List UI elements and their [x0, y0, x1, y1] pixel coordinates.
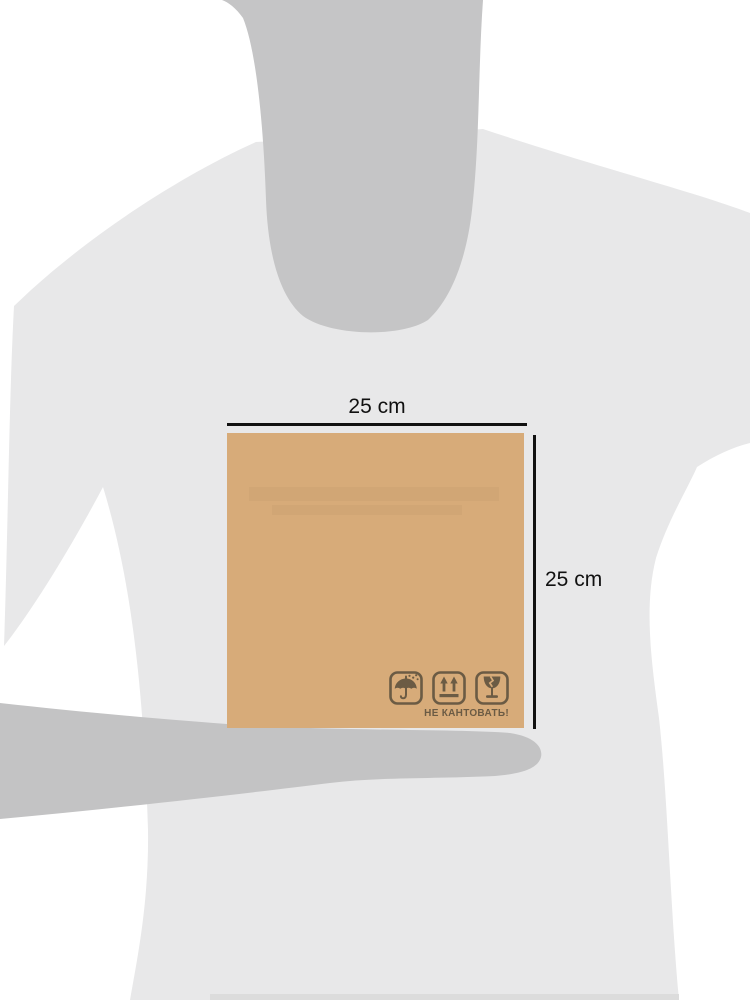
cardboard-box: НЕ КАНТОВАТЬ! — [227, 433, 524, 728]
keep-dry-icon — [389, 670, 423, 705]
box-tape-smudge — [249, 487, 499, 501]
width-dimension-label: 25 cm — [227, 395, 527, 419]
tshirt-hem-shadow — [210, 994, 679, 1000]
product-dimension-scene: НЕ КАНТОВАТЬ! 25 cm 25 cm — [0, 0, 750, 1000]
box-tape-smudge — [272, 505, 462, 515]
height-dimension-line — [533, 435, 536, 729]
do-not-tilt-label: НЕ КАНТОВАТЬ! — [287, 708, 509, 719]
this-side-up-icon — [432, 670, 466, 705]
height-dimension-label: 25 cm — [545, 568, 602, 592]
shipping-icons-row — [389, 670, 509, 705]
fragile-icon — [475, 670, 509, 705]
width-dimension-line — [227, 423, 527, 426]
